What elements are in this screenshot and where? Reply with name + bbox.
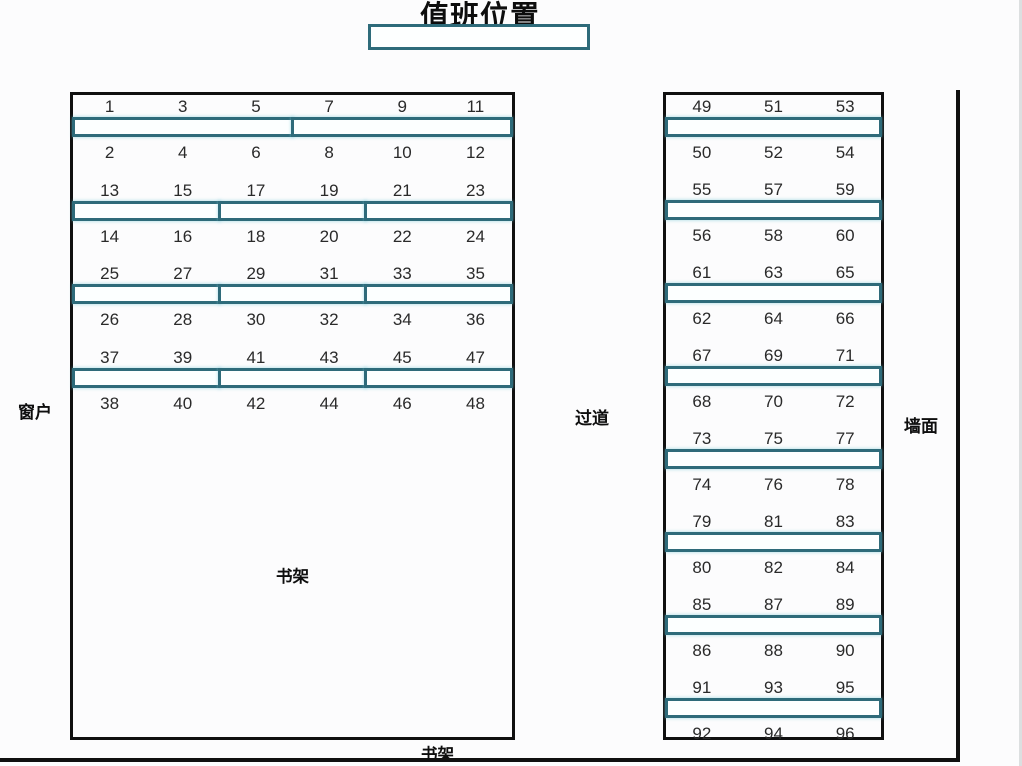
seat-number-row: 616365: [666, 262, 881, 284]
seat-15: 15: [146, 180, 219, 202]
seat-71: 71: [809, 345, 881, 367]
seat-35: 35: [439, 263, 512, 285]
seating-chart-page: 值班位置 13579112468101213151719212314161820…: [0, 0, 1022, 766]
seat-10: 10: [366, 142, 439, 164]
seat-number-row: 798183: [666, 511, 881, 533]
seat-61: 61: [666, 262, 738, 284]
seat-23: 23: [439, 180, 512, 202]
seat-95: 95: [809, 677, 881, 699]
seat-70: 70: [738, 391, 810, 413]
desk-bar-segment: [364, 284, 513, 304]
seat-48: 48: [439, 393, 512, 415]
seat-64: 64: [738, 308, 810, 330]
seat-21: 21: [366, 180, 439, 202]
desk-bar: [665, 283, 882, 303]
seat-73: 73: [666, 428, 738, 450]
desk-bar-segment: [665, 615, 882, 635]
seat-number-row: 565860: [666, 225, 881, 247]
seat-8: 8: [293, 142, 366, 164]
seat-32: 32: [293, 309, 366, 331]
desk-bar: [665, 532, 882, 552]
wall-label: 墙面: [904, 412, 938, 437]
seat-41: 41: [219, 347, 292, 369]
seat-1: 1: [73, 96, 146, 118]
seat-22: 22: [366, 226, 439, 248]
seat-29: 29: [219, 263, 292, 285]
aisle-label: 过道: [575, 404, 609, 429]
desk-bar-segment: [665, 532, 882, 552]
seat-59: 59: [809, 179, 881, 201]
desk-bar-segment: [72, 201, 221, 221]
desk-bar-segment: [291, 117, 513, 137]
desk-bar: [72, 117, 513, 137]
desk-bar-segment: [665, 117, 882, 137]
seat-50: 50: [666, 142, 738, 164]
seat-27: 27: [146, 263, 219, 285]
seat-67: 67: [666, 345, 738, 367]
seat-43: 43: [293, 347, 366, 369]
seat-number-row: 687072: [666, 391, 881, 413]
seat-81: 81: [738, 511, 810, 533]
seat-7: 7: [293, 96, 366, 118]
seat-82: 82: [738, 557, 810, 579]
seat-56: 56: [666, 225, 738, 247]
seat-60: 60: [809, 225, 881, 247]
desk-bar-segment: [364, 201, 513, 221]
seat-33: 33: [366, 263, 439, 285]
desk-bar-segment: [665, 283, 882, 303]
desk-bar-segment: [665, 366, 882, 386]
duty-position-box: [368, 24, 590, 50]
seat-75: 75: [738, 428, 810, 450]
seat-63: 63: [738, 262, 810, 284]
seat-80: 80: [666, 557, 738, 579]
desk-bar: [72, 368, 513, 388]
seat-number-row: 131517192123: [73, 180, 512, 202]
desk-bar: [665, 449, 882, 469]
desk-bar-segment: [665, 449, 882, 469]
seat-25: 25: [73, 263, 146, 285]
seat-52: 52: [738, 142, 810, 164]
seat-number-row: 858789: [666, 594, 881, 616]
desk-bar-segment: [218, 368, 367, 388]
desk-bar: [665, 117, 882, 137]
seat-65: 65: [809, 262, 881, 284]
desk-bar: [72, 201, 513, 221]
right-seat-block: 4951535052545557595658606163656264666769…: [663, 92, 884, 740]
seat-62: 62: [666, 308, 738, 330]
seat-number-row: 24681012: [73, 142, 512, 164]
seat-number-row: 929496: [666, 723, 881, 745]
seat-number-row: 737577: [666, 428, 881, 450]
seat-74: 74: [666, 474, 738, 496]
seat-20: 20: [293, 226, 366, 248]
seat-31: 31: [293, 263, 366, 285]
seat-87: 87: [738, 594, 810, 616]
desk-bar: [665, 615, 882, 635]
desk-bar-segment: [218, 284, 367, 304]
desk-bar-segment: [72, 117, 294, 137]
seat-5: 5: [219, 96, 292, 118]
seat-57: 57: [738, 179, 810, 201]
desk-bar: [665, 366, 882, 386]
seat-number-row: 676971: [666, 345, 881, 367]
seat-40: 40: [146, 393, 219, 415]
seat-49: 49: [666, 96, 738, 118]
seat-17: 17: [219, 180, 292, 202]
seat-51: 51: [738, 96, 810, 118]
seat-42: 42: [219, 393, 292, 415]
seat-4: 4: [146, 142, 219, 164]
seat-96: 96: [809, 723, 881, 745]
desk-bar: [665, 200, 882, 220]
right-wall-line: [956, 90, 960, 762]
desk-bar-segment: [665, 698, 882, 718]
bottom-wall-line: [0, 758, 959, 762]
seat-number-row: 808284: [666, 557, 881, 579]
seat-number-row: 555759: [666, 179, 881, 201]
seat-number-row: 252729313335: [73, 263, 512, 285]
seat-85: 85: [666, 594, 738, 616]
window-label: 窗户: [18, 398, 52, 423]
seat-number-row: 505254: [666, 142, 881, 164]
seat-13: 13: [73, 180, 146, 202]
seat-45: 45: [366, 347, 439, 369]
seat-93: 93: [738, 677, 810, 699]
seat-18: 18: [219, 226, 292, 248]
bookshelf-inner-label: 书架: [276, 563, 309, 587]
seat-78: 78: [809, 474, 881, 496]
left-seat-block: 1357911246810121315171921231416182022242…: [70, 92, 515, 740]
desk-bar-segment: [72, 284, 221, 304]
seat-92: 92: [666, 723, 738, 745]
seat-3: 3: [146, 96, 219, 118]
seat-90: 90: [809, 640, 881, 662]
seat-number-row: 868890: [666, 640, 881, 662]
seat-26: 26: [73, 309, 146, 331]
seat-68: 68: [666, 391, 738, 413]
seat-94: 94: [738, 723, 810, 745]
seat-76: 76: [738, 474, 810, 496]
seat-6: 6: [219, 142, 292, 164]
seat-number-row: 626466: [666, 308, 881, 330]
desk-bar-segment: [665, 200, 882, 220]
seat-46: 46: [366, 393, 439, 415]
seat-number-row: 1357911: [73, 96, 512, 118]
seat-11: 11: [439, 96, 512, 118]
seat-55: 55: [666, 179, 738, 201]
seat-54: 54: [809, 142, 881, 164]
desk-bar-segment: [218, 201, 367, 221]
seat-number-row: 919395: [666, 677, 881, 699]
seat-39: 39: [146, 347, 219, 369]
seat-58: 58: [738, 225, 810, 247]
desk-bar: [72, 284, 513, 304]
seat-72: 72: [809, 391, 881, 413]
seat-91: 91: [666, 677, 738, 699]
desk-bar: [665, 698, 882, 718]
seat-66: 66: [809, 308, 881, 330]
seat-86: 86: [666, 640, 738, 662]
seat-84: 84: [809, 557, 881, 579]
seat-34: 34: [366, 309, 439, 331]
seat-2: 2: [73, 142, 146, 164]
seat-16: 16: [146, 226, 219, 248]
seat-14: 14: [73, 226, 146, 248]
desk-bar-segment: [364, 368, 513, 388]
seat-30: 30: [219, 309, 292, 331]
seat-24: 24: [439, 226, 512, 248]
seat-83: 83: [809, 511, 881, 533]
seat-77: 77: [809, 428, 881, 450]
seat-28: 28: [146, 309, 219, 331]
seat-47: 47: [439, 347, 512, 369]
seat-36: 36: [439, 309, 512, 331]
seat-44: 44: [293, 393, 366, 415]
seat-12: 12: [439, 142, 512, 164]
seat-number-row: 262830323436: [73, 309, 512, 331]
seat-number-row: 384042444648: [73, 393, 512, 415]
seat-number-row: 373941434547: [73, 347, 512, 369]
seat-79: 79: [666, 511, 738, 533]
seat-9: 9: [366, 96, 439, 118]
seat-number-row: 747678: [666, 474, 881, 496]
seat-number-row: 141618202224: [73, 226, 512, 248]
seat-19: 19: [293, 180, 366, 202]
seat-89: 89: [809, 594, 881, 616]
seat-38: 38: [73, 393, 146, 415]
seat-53: 53: [809, 96, 881, 118]
seat-number-row: 495153: [666, 96, 881, 118]
desk-bar-segment: [72, 368, 221, 388]
seat-88: 88: [738, 640, 810, 662]
seat-37: 37: [73, 347, 146, 369]
seat-69: 69: [738, 345, 810, 367]
